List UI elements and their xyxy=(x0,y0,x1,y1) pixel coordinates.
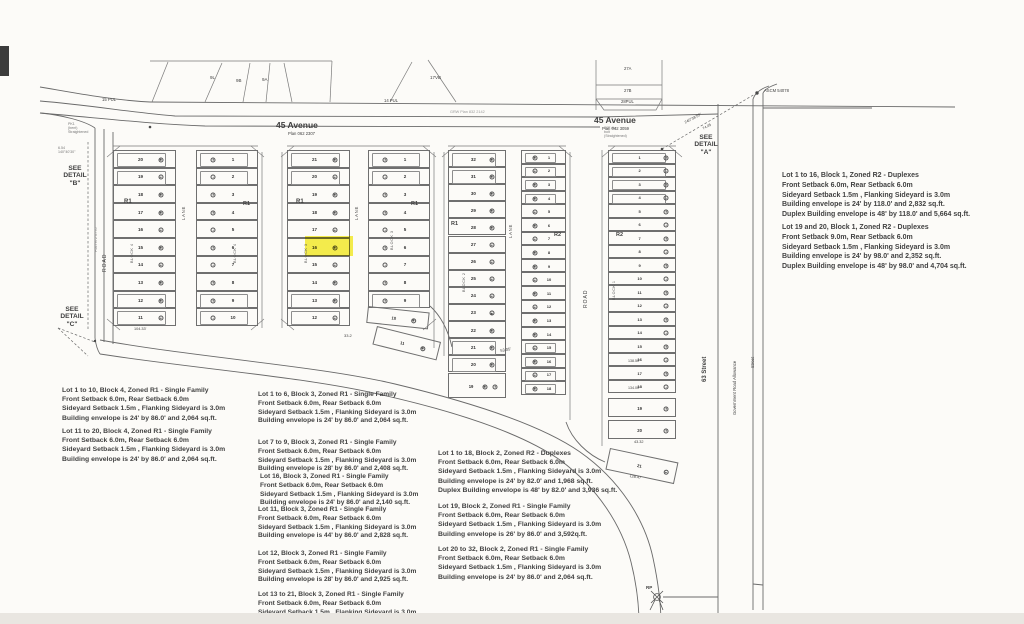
note-line: Building envelope is 24' by 118.0' and 2… xyxy=(782,200,970,210)
note-block1-lots-19-20: Lot 19 and 20, Block 1, Zoned R2 - Duple… xyxy=(782,223,967,272)
note-line: Sideyard Setback 1.5m , Flanking Sideyar… xyxy=(258,409,416,418)
note-line: Sideyard Setback 1.5m , Flanking Sideyar… xyxy=(258,568,416,577)
note-line: Building envelope is 24' by 86.0' and 2,… xyxy=(62,455,225,464)
scan-edge-shadow xyxy=(0,613,1024,624)
note-block3-lot-12: Lot 12, Block 3, Zoned R1 - Single Famil… xyxy=(258,550,416,585)
note-line: Lot 19, Block 2, Zoned R1 - Single Famil… xyxy=(438,502,601,511)
note-line: Sideyard Setback 1.5m , Flanking Sideyar… xyxy=(782,243,967,253)
note-line: Front Setback 9.0m, Rear Setback 6.0m xyxy=(782,233,967,243)
note-line: Lot 1 to 10, Block 4, Zoned R1 - Single … xyxy=(62,386,225,395)
note-line: Front Setback 6.0m, Rear Setback 6.0m xyxy=(438,511,601,520)
note-line: Front Setback 6.0m, Rear Setback 6.0m xyxy=(62,395,225,404)
plat-sheet: 2019181716151413121112345678910212019181… xyxy=(0,0,1024,624)
note-block2-lot-19: Lot 19, Block 2, Zoned R1 - Single Famil… xyxy=(438,502,601,539)
note-line: Building envelope is 26' by 86.0' and 3,… xyxy=(438,530,601,539)
note-line: Lot 16, Block 3, Zoned R1 - Single Famil… xyxy=(260,473,418,482)
note-line: Front Setback 6.0m, Rear Setback 6.0m xyxy=(258,400,416,409)
note-line: Building envelope is 24' by 98.0' and 2,… xyxy=(782,252,967,262)
note-line: Lot 20 to 32, Block 2, Zoned R1 - Single… xyxy=(438,545,601,554)
note-line: Building envelope is 24' by 86.0' and 2,… xyxy=(258,417,416,426)
note-line: Front Setback 6.0m, Rear Setback 6.0m xyxy=(258,515,416,524)
note-block3-lot-16: Lot 16, Block 3, Zoned R1 - Single Famil… xyxy=(260,473,418,508)
note-line: Building envelope is 24' by 86.0' and 2,… xyxy=(62,414,225,423)
note-block3-lots-7-9: Lot 7 to 9, Block 3, Zoned R1 - Single F… xyxy=(258,439,416,474)
note-line: Sideyard Setback 1.5m , Flanking Sideyar… xyxy=(438,563,601,572)
note-line: Building envelope is 24' by 82.0' and 1,… xyxy=(438,477,617,486)
note-line: Sideyard Setback 1.5m , Flanking Sideyar… xyxy=(782,191,970,201)
note-line: Building envelope is 24' by 86.0' and 2,… xyxy=(438,573,601,582)
note-block2-lots-1-18: Lot 1 to 18, Block 2, Zoned R2 - Duplexe… xyxy=(438,449,617,495)
note-line: Sideyard Setback 1.5m , Flanking Sideyar… xyxy=(438,520,601,529)
note-line: Sideyard Setback 1.5m , Flanking Sideyar… xyxy=(258,524,416,533)
note-line: Building envelope is 28' by 86.0' and 2,… xyxy=(258,576,416,585)
note-line: Front Setback 6.0m, Rear Setback 6.0m xyxy=(260,482,418,491)
note-line: Lot 1 to 18, Block 2, Zoned R2 - Duplexe… xyxy=(438,449,617,458)
note-line: Sideyard Setback 1.5m , Flanking Sideyar… xyxy=(62,445,225,454)
note-line: Sideyard Setback 1.5m , Flanking Sideyar… xyxy=(438,467,617,476)
note-block3-lots-1-6: Lot 1 to 6, Block 3, Zoned R1 - Single F… xyxy=(258,391,416,426)
note-block2-lots-20-32: Lot 20 to 32, Block 2, Zoned R1 - Single… xyxy=(438,545,601,582)
note-line: Front Setback 6.0m, Rear Setback 6.0m xyxy=(438,554,601,563)
note-block3-lot-11: Lot 11, Block 3, Zoned R1 - Single Famil… xyxy=(258,506,416,541)
note-line: Front Setback 6.0m, Rear Setback 6.0m xyxy=(258,448,416,457)
note-line: Duplex Building envelope is 48' by 118.0… xyxy=(782,210,970,220)
note-line: Lot 1 to 16, Block 1, Zoned R2 - Duplexe… xyxy=(782,171,970,181)
note-block4-lots-1-10: Lot 1 to 10, Block 4, Zoned R1 - Single … xyxy=(62,386,225,423)
note-line: Front Setback 6.0m, Rear Setback 6.0m xyxy=(438,458,617,467)
note-line: Building envelope is 44' by 86.0' and 2,… xyxy=(258,532,416,541)
note-line: Lot 7 to 9, Block 3, Zoned R1 - Single F… xyxy=(258,439,416,448)
note-line: Front Setback 6.0m, Rear Setback 6.0m xyxy=(258,559,416,568)
note-line: Lot 13 to 21, Block 3, Zoned R1 - Single… xyxy=(258,591,416,600)
note-line: Lot 11 to 20, Block 4, Zoned R1 - Single… xyxy=(62,427,225,436)
note-line: Front Setback 6.0m, Rear Setback 6.0m xyxy=(782,181,970,191)
zoning-notes-layer: Lot 1 to 10, Block 4, Zoned R1 - Single … xyxy=(0,0,1024,624)
note-block1-lots-1-16: Lot 1 to 16, Block 1, Zoned R2 - Duplexe… xyxy=(782,171,970,220)
note-line: Sideyard Setback 1.5m , Flanking Sideyar… xyxy=(260,491,418,500)
note-line: Lot 11, Block 3, Zoned R1 - Single Famil… xyxy=(258,506,416,515)
note-line: Front Setback 6.0m, Rear Setback 6.0m xyxy=(258,600,416,609)
note-line: Sideyard Setback 1.5m , Flanking Sideyar… xyxy=(258,457,416,466)
note-line: Front Setback 6.0m, Rear Setback 6.0m xyxy=(62,436,225,445)
note-line: Sideyard Setback 1.5m , Flanking Sideyar… xyxy=(62,404,225,413)
note-block4-lots-11-20: Lot 11 to 20, Block 4, Zoned R1 - Single… xyxy=(62,427,225,464)
note-line: Lot 1 to 6, Block 3, Zoned R1 - Single F… xyxy=(258,391,416,400)
note-line: Lot 12, Block 3, Zoned R1 - Single Famil… xyxy=(258,550,416,559)
note-line: Duplex Building envelope is 48' by 98.0'… xyxy=(782,262,967,272)
note-line: Duplex Building envelope is 48' by 82.0'… xyxy=(438,486,617,495)
note-line: Lot 19 and 20, Block 1, Zoned R2 - Duple… xyxy=(782,223,967,233)
